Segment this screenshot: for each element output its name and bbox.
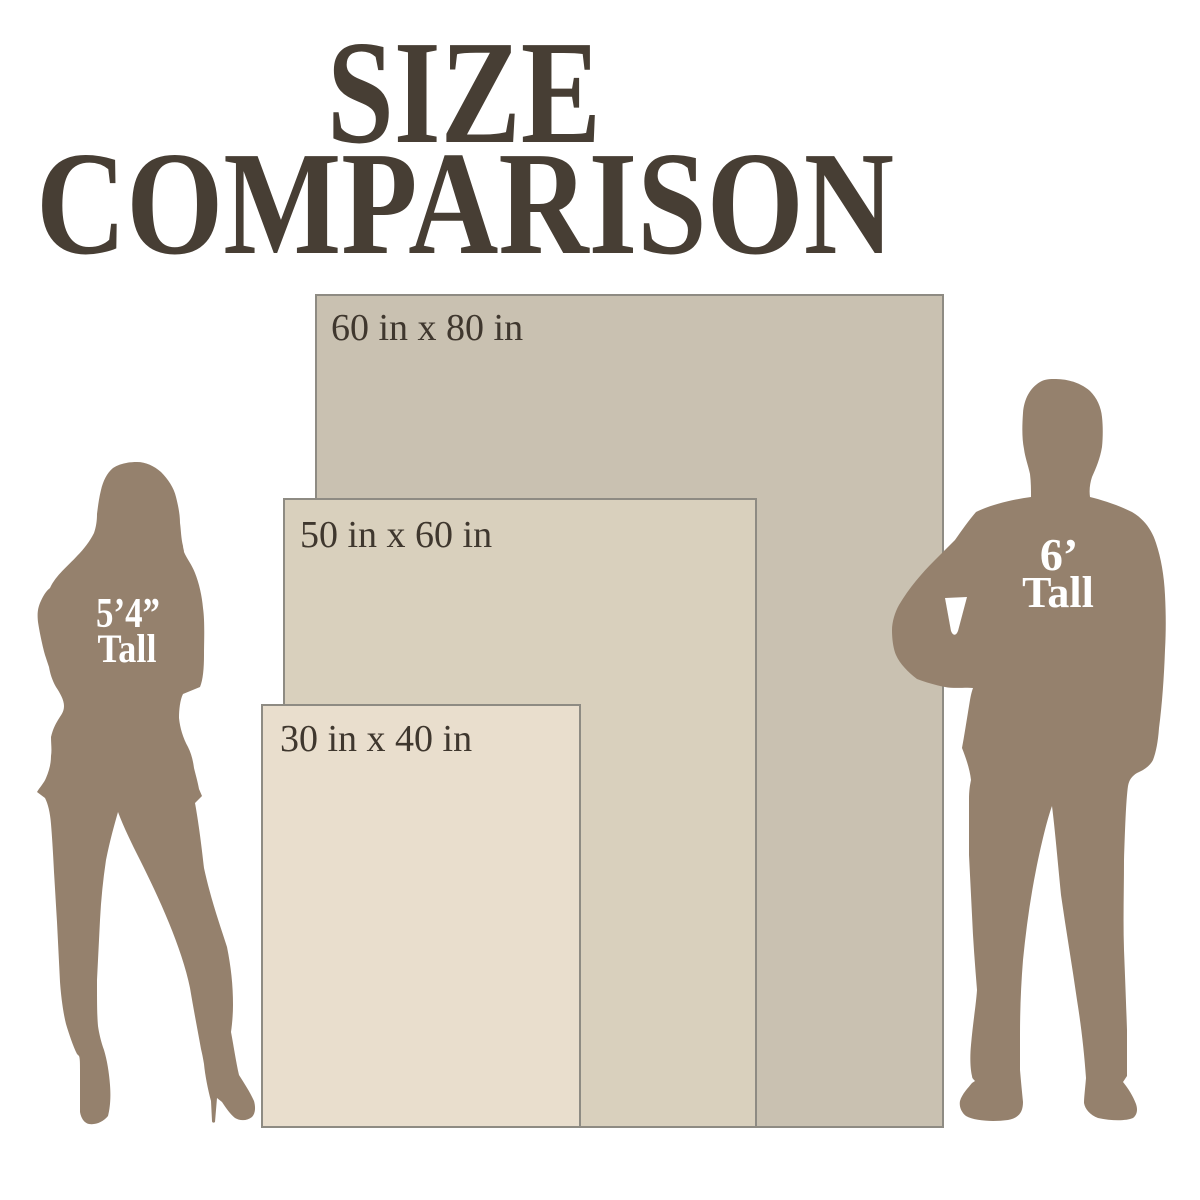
svg-text:COMPARISON: COMPARISON <box>36 122 894 286</box>
svg-text:Tall: Tall <box>1022 568 1094 617</box>
svg-text:50 in x 60 in: 50 in x 60 in <box>300 514 492 556</box>
svg-text:30 in x 40 in: 30 in x 40 in <box>280 718 472 760</box>
svg-text:60 in x 80 in: 60 in x 80 in <box>331 307 523 349</box>
svg-text:Tall: Tall <box>98 626 157 671</box>
